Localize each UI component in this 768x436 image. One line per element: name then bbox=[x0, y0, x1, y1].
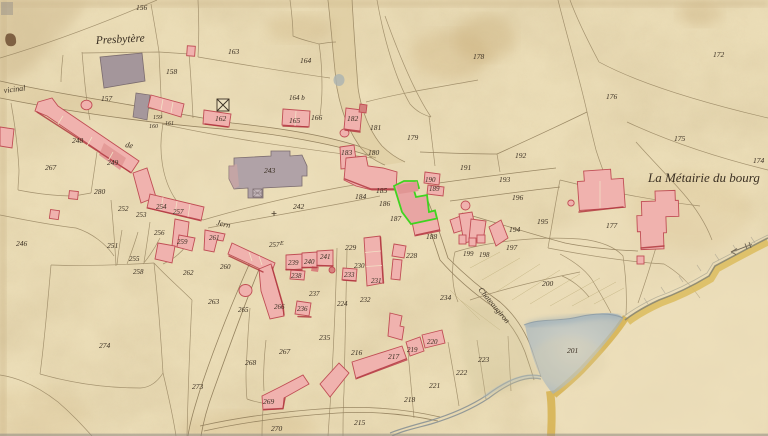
svg-text:193: 193 bbox=[499, 175, 511, 184]
svg-text:239: 239 bbox=[288, 259, 299, 267]
svg-text:261: 261 bbox=[209, 234, 220, 242]
svg-text:200: 200 bbox=[542, 279, 554, 288]
svg-text:263: 263 bbox=[208, 297, 220, 306]
svg-text:190: 190 bbox=[425, 176, 436, 184]
svg-text:222: 222 bbox=[456, 368, 468, 377]
svg-text:La Métairie du bourg: La Métairie du bourg bbox=[647, 170, 760, 185]
svg-text:267: 267 bbox=[279, 347, 291, 356]
svg-text:268: 268 bbox=[245, 358, 257, 367]
svg-text:254: 254 bbox=[156, 203, 167, 211]
svg-text:161: 161 bbox=[165, 121, 174, 127]
svg-text:180: 180 bbox=[368, 148, 380, 157]
svg-text:266: 266 bbox=[274, 303, 285, 311]
svg-text:220: 220 bbox=[427, 338, 438, 346]
svg-text:224: 224 bbox=[337, 300, 348, 308]
svg-text:251: 251 bbox=[107, 241, 118, 250]
svg-text:238: 238 bbox=[291, 272, 302, 280]
svg-text:166: 166 bbox=[311, 113, 323, 122]
svg-text:172: 172 bbox=[713, 50, 725, 59]
svg-text:160: 160 bbox=[149, 124, 158, 130]
svg-text:257: 257 bbox=[269, 241, 280, 249]
svg-text:158: 158 bbox=[166, 67, 178, 76]
svg-text:233: 233 bbox=[344, 271, 355, 279]
svg-text:201: 201 bbox=[567, 346, 578, 355]
svg-text:165: 165 bbox=[289, 116, 301, 125]
svg-text:198: 198 bbox=[479, 251, 490, 259]
svg-text:242: 242 bbox=[293, 202, 305, 211]
svg-text:231: 231 bbox=[371, 277, 382, 285]
svg-text:192: 192 bbox=[515, 151, 527, 160]
svg-text:236: 236 bbox=[297, 305, 308, 313]
svg-text:164 b: 164 b bbox=[289, 94, 305, 102]
svg-text:232: 232 bbox=[360, 296, 371, 304]
svg-text:280: 280 bbox=[94, 187, 106, 196]
svg-text:253: 253 bbox=[136, 211, 147, 219]
svg-text:223: 223 bbox=[478, 355, 490, 364]
svg-text:234: 234 bbox=[440, 293, 452, 302]
svg-text:257: 257 bbox=[173, 208, 184, 216]
svg-text:235: 235 bbox=[319, 333, 331, 342]
svg-text:196: 196 bbox=[512, 193, 524, 202]
svg-text:179: 179 bbox=[407, 133, 419, 142]
svg-text:230: 230 bbox=[354, 262, 365, 270]
svg-text:255: 255 bbox=[129, 255, 140, 263]
svg-text:215: 215 bbox=[354, 418, 366, 427]
svg-text:270: 270 bbox=[271, 424, 283, 433]
svg-text:249: 249 bbox=[107, 158, 119, 167]
svg-text:229: 229 bbox=[345, 243, 357, 252]
svg-text:183: 183 bbox=[341, 148, 353, 157]
svg-text:157: 157 bbox=[101, 94, 113, 103]
svg-text:191: 191 bbox=[460, 163, 471, 172]
svg-text:181: 181 bbox=[370, 123, 381, 132]
svg-text:252: 252 bbox=[118, 205, 129, 213]
svg-text:187: 187 bbox=[390, 214, 402, 223]
svg-text:185: 185 bbox=[376, 186, 388, 195]
svg-text:237: 237 bbox=[309, 290, 320, 298]
svg-text:274: 274 bbox=[99, 341, 111, 350]
svg-text:248: 248 bbox=[72, 136, 84, 145]
svg-text:163: 163 bbox=[228, 47, 240, 56]
svg-text:258: 258 bbox=[133, 268, 144, 276]
svg-text:175: 175 bbox=[674, 134, 686, 143]
svg-text:195: 195 bbox=[537, 217, 549, 226]
svg-text:269: 269 bbox=[263, 397, 275, 406]
svg-text:221: 221 bbox=[429, 381, 440, 390]
svg-text:199: 199 bbox=[463, 250, 474, 258]
svg-text:216: 216 bbox=[351, 348, 363, 357]
svg-text:156: 156 bbox=[136, 3, 148, 12]
svg-text:218: 218 bbox=[404, 395, 416, 404]
svg-text:186: 186 bbox=[379, 199, 391, 208]
svg-text:177: 177 bbox=[606, 221, 618, 230]
svg-text:194: 194 bbox=[509, 225, 521, 234]
svg-text:178: 178 bbox=[473, 52, 485, 61]
svg-text:219: 219 bbox=[407, 346, 418, 354]
svg-text:189: 189 bbox=[429, 185, 440, 193]
svg-text:159: 159 bbox=[153, 115, 162, 121]
svg-text:267: 267 bbox=[45, 163, 57, 172]
svg-text:217: 217 bbox=[388, 352, 400, 361]
svg-text:182: 182 bbox=[347, 114, 359, 123]
svg-text:241: 241 bbox=[320, 253, 331, 261]
svg-text:162: 162 bbox=[215, 114, 227, 123]
svg-text:246: 246 bbox=[16, 239, 28, 248]
svg-text:240: 240 bbox=[304, 258, 315, 266]
svg-text:E: E bbox=[279, 241, 284, 247]
svg-text:259: 259 bbox=[177, 238, 188, 246]
svg-text:174: 174 bbox=[753, 156, 765, 165]
svg-text:265: 265 bbox=[238, 306, 249, 314]
svg-text:256: 256 bbox=[154, 229, 165, 237]
svg-text:228: 228 bbox=[406, 251, 418, 260]
svg-text:164: 164 bbox=[300, 56, 312, 65]
svg-text:243: 243 bbox=[264, 166, 276, 175]
svg-text:273: 273 bbox=[192, 382, 204, 391]
svg-text:184: 184 bbox=[355, 192, 367, 201]
svg-text:176: 176 bbox=[606, 92, 618, 101]
svg-text:260: 260 bbox=[220, 263, 231, 271]
svg-text:197: 197 bbox=[506, 243, 518, 252]
svg-text:262: 262 bbox=[183, 269, 194, 277]
svg-text:188: 188 bbox=[426, 232, 438, 241]
